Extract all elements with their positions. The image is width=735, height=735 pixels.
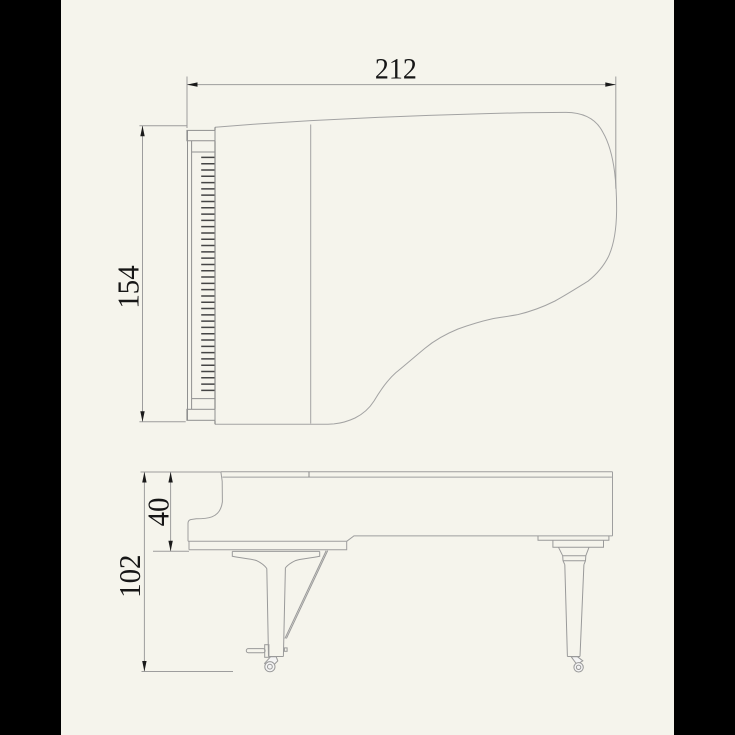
svg-text:154: 154: [112, 265, 146, 308]
svg-text:212: 212: [375, 53, 417, 86]
svg-text:102: 102: [113, 555, 147, 598]
svg-text:40: 40: [142, 498, 176, 527]
